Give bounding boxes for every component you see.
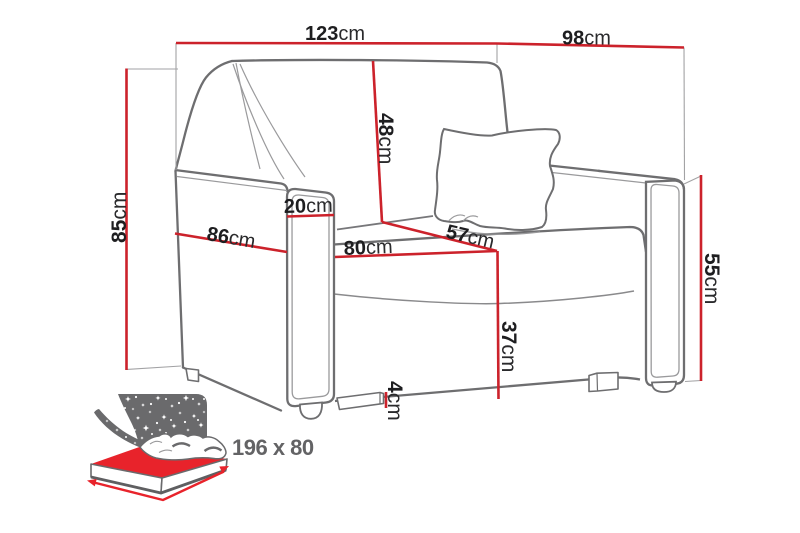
svg-text:123cm: 123cm	[305, 23, 365, 45]
svg-text:20cm: 20cm	[284, 195, 333, 218]
svg-text:4cm: 4cm	[383, 381, 406, 421]
svg-text:80cm: 80cm	[343, 236, 393, 260]
svg-text:37cm: 37cm	[497, 321, 520, 372]
svg-text:196 x 80: 196 x 80	[232, 435, 314, 460]
svg-text:98cm: 98cm	[562, 28, 611, 50]
svg-text:48cm: 48cm	[374, 113, 397, 164]
svg-text:55cm: 55cm	[700, 253, 723, 304]
svg-text:85cm: 85cm	[108, 192, 131, 243]
